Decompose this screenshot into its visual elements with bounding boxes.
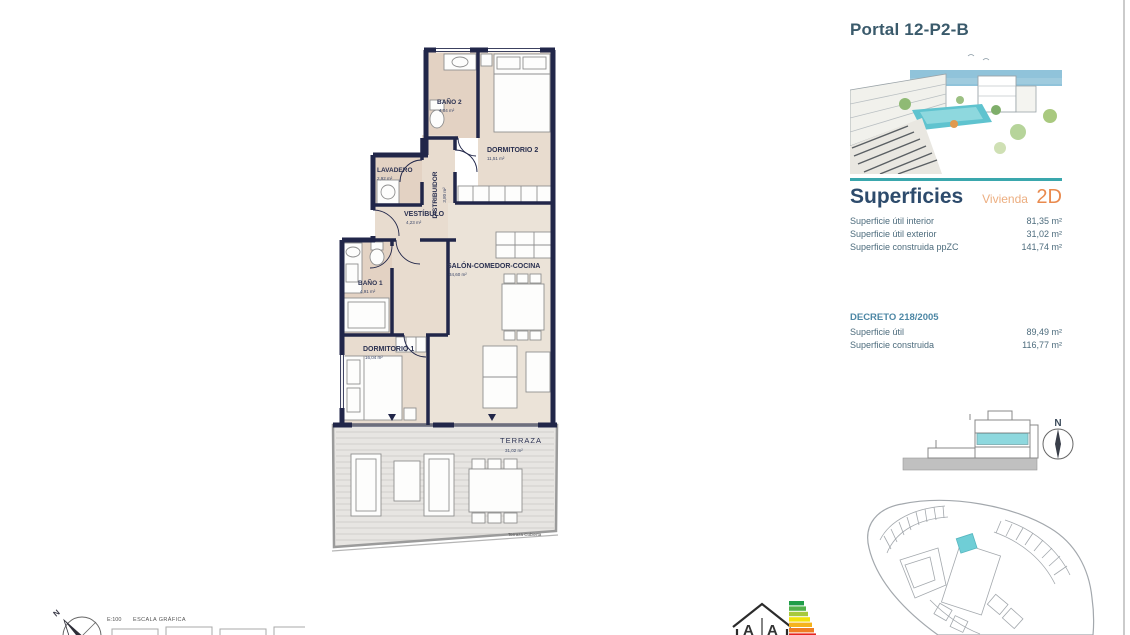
surface-label: Superficie construida xyxy=(850,339,934,352)
surface-value: 81,35 m² xyxy=(1026,215,1062,228)
label-dormitorio2: DORMITORIO 2 xyxy=(487,147,538,154)
surface-value: 31,02 m² xyxy=(1026,228,1062,241)
scale-label: ESCALA GRÁFICA xyxy=(133,616,186,623)
area-dormitorio2: 11,51 m² xyxy=(487,156,505,161)
terrace-furniture xyxy=(351,454,522,523)
energy-arrows xyxy=(789,601,816,635)
label-lavadero: LAVADERO xyxy=(377,167,413,174)
energy-letter-right: A xyxy=(767,622,778,635)
north-compass-icon: N xyxy=(52,608,101,635)
area-distribuidor: 3,80 m² xyxy=(442,187,447,203)
energy-efficiency-icon: A A xyxy=(733,601,816,635)
surface-row: Superficie útil interior 81,35 m² xyxy=(850,215,1062,228)
label-bano1: BAÑO 1 xyxy=(358,278,383,287)
highlighted-floor xyxy=(977,434,1028,445)
vivienda-code: 2D xyxy=(1036,186,1062,208)
locator-north-label: N xyxy=(1054,418,1061,429)
floor-plan: BAÑO 2 4,04 m² DORMITORIO 2 11,51 m² LAV… xyxy=(332,48,558,552)
surface-row: Superficie útil 89,49 m² xyxy=(850,326,1062,339)
info-panel: Portal 12-P2-B xyxy=(850,20,1062,352)
surface-value: 89,49 m² xyxy=(1026,326,1062,339)
page-edge-line xyxy=(1123,0,1125,635)
portal-title: Portal 12-P2-B xyxy=(850,20,1062,40)
surface-row: Superficie útil exterior 31,02 m² xyxy=(850,228,1062,241)
surface-row: Superficie construida 116,77 m² xyxy=(850,339,1062,352)
plan-sheet: BAÑO 2 4,04 m² DORMITORIO 2 11,51 m² LAV… xyxy=(0,0,1130,635)
surface-value: 116,77 m² xyxy=(1022,339,1062,352)
area-dormitorio1: 16,04 m² xyxy=(365,355,383,360)
label-vestibulo: VESTÍBULO xyxy=(404,209,445,218)
locator-compass-icon: N xyxy=(1043,418,1073,459)
label-dormitorio1: DORMITORIO 1 xyxy=(363,346,414,353)
scale-bar: E:100 ESCALA GRÁFICA xyxy=(107,616,305,635)
superficies-rows: Superficie útil interior 81,35 m² Superf… xyxy=(850,215,1062,254)
surface-label: Superficie útil interior xyxy=(850,215,934,228)
area-salon: 34,60 m² xyxy=(449,272,467,277)
site-key-plan xyxy=(868,500,1094,635)
surface-label: Superficie útil xyxy=(850,326,904,339)
building-rendering xyxy=(850,48,1062,174)
energy-letter-left: A xyxy=(743,622,754,635)
label-salon: SALÓN-COMEDOR-COCINA xyxy=(447,261,540,270)
terraza-cubierta-note: Terraza Cubierta xyxy=(508,532,542,537)
surface-label: Superficie útil exterior xyxy=(850,228,937,241)
north-label: N xyxy=(52,608,62,619)
area-bano1: 4,91 m² xyxy=(360,289,376,294)
teal-divider xyxy=(850,178,1062,181)
superficies-heading: Superficies xyxy=(850,185,963,209)
decreto-block: DECRETO 218/2005 Superficie útil 89,49 m… xyxy=(850,312,1062,352)
area-vestibulo: 4,23 m² xyxy=(406,220,422,225)
scale-ratio: E:100 xyxy=(107,617,121,623)
area-lavadero: 2,92 m² xyxy=(377,176,393,181)
surface-label: Superficie construida ppZC xyxy=(850,241,959,254)
decreto-heading: DECRETO 218/2005 xyxy=(850,312,1062,323)
label-terraza: TERRAZA xyxy=(500,436,542,445)
area-bano2: 4,04 m² xyxy=(439,108,455,113)
rendering-illustration xyxy=(850,48,1062,174)
section-diagram xyxy=(903,411,1038,470)
surface-value: 141,74 m² xyxy=(1021,241,1062,254)
vivienda-label: Vivienda xyxy=(982,192,1028,206)
label-bano2: BAÑO 2 xyxy=(437,97,462,106)
area-terraza: 31,02 m² xyxy=(505,448,523,453)
surface-row: Superficie construida ppZC 141,74 m² xyxy=(850,241,1062,254)
